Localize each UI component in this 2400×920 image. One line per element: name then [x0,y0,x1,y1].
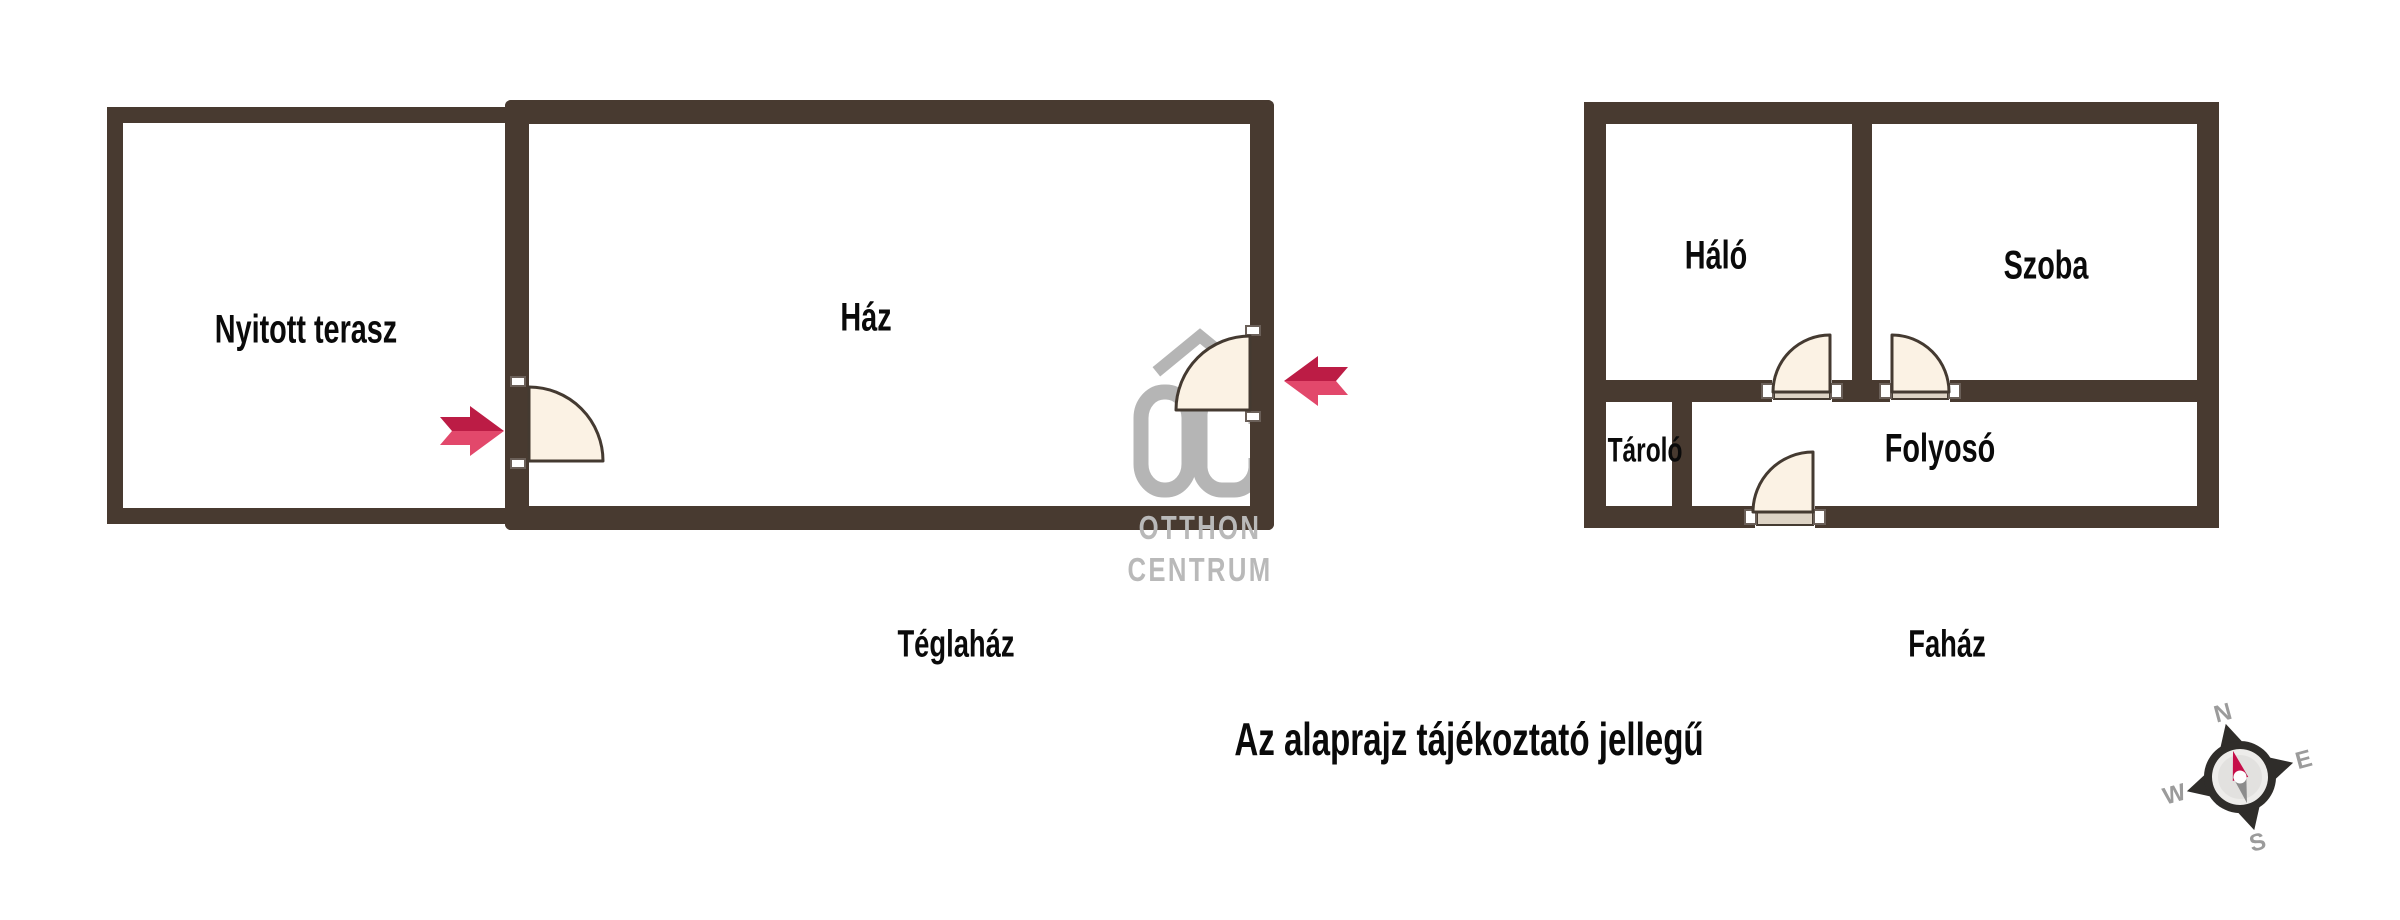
fahaz-wall-halo-szoba [1852,124,1872,380]
room-label-haz: Ház [840,296,891,341]
watermark-text-centrum: CENTRUM [1127,551,1272,589]
building-label-teglahaz: Téglaház [897,624,1014,667]
caption-disclaimer: Az alaprajz tájékoztató jellegű [1234,712,1703,766]
fahaz-wall-mid-3 [1950,380,2197,402]
room-label-halo: Háló [1685,234,1747,279]
fahaz-wall-mid-1 [1606,380,1772,402]
fahaz-wall-right [2197,102,2219,528]
fahaz-wall-bottom-right [1815,506,2219,528]
house-wall-right [1250,100,1274,530]
room-label-folyoso: Folyosó [1885,427,1995,472]
terrace-wall-top [107,107,513,123]
compass-icon: N E S W [2143,681,2333,876]
building-label-fahaz: Faház [1908,624,1986,667]
house-wall-top [505,100,1274,124]
terrace-wall-left [107,107,123,524]
frame-mark [1814,510,1825,524]
compass-label-w: W [2160,779,2189,811]
fahaz-wall-left [1584,102,1606,528]
frame-mark [1762,384,1773,398]
frame-mark [1949,384,1960,398]
watermark-text-otthon: OTTHON [1139,509,1262,547]
terrace-wall-bottom [107,508,513,524]
room-label-nyitott-terasz: Nyitott terasz [215,308,397,353]
fahaz-wall-top [1584,102,2219,124]
floorplan-graphics: N E S W [0,0,2400,920]
frame-mark [1880,384,1891,398]
frame-mark [1831,384,1842,398]
floorplan-page: N E S W Nyitott terasz Ház Háló Szoba Tá… [0,0,2400,920]
frame-mark [511,377,525,386]
frame-mark [1246,326,1260,335]
compass-label-n: N [2211,698,2235,729]
entrance-arrow-left-icon [1284,356,1348,406]
compass-label-s: S [2246,828,2268,858]
room-label-tarolo: Tároló [1608,432,1683,471]
frame-mark [511,459,525,468]
frame-mark [1246,412,1260,421]
compass-label-e: E [2293,745,2315,775]
fahaz-wall-bottom-left [1584,506,1755,528]
room-label-szoba: Szoba [2004,244,2089,289]
